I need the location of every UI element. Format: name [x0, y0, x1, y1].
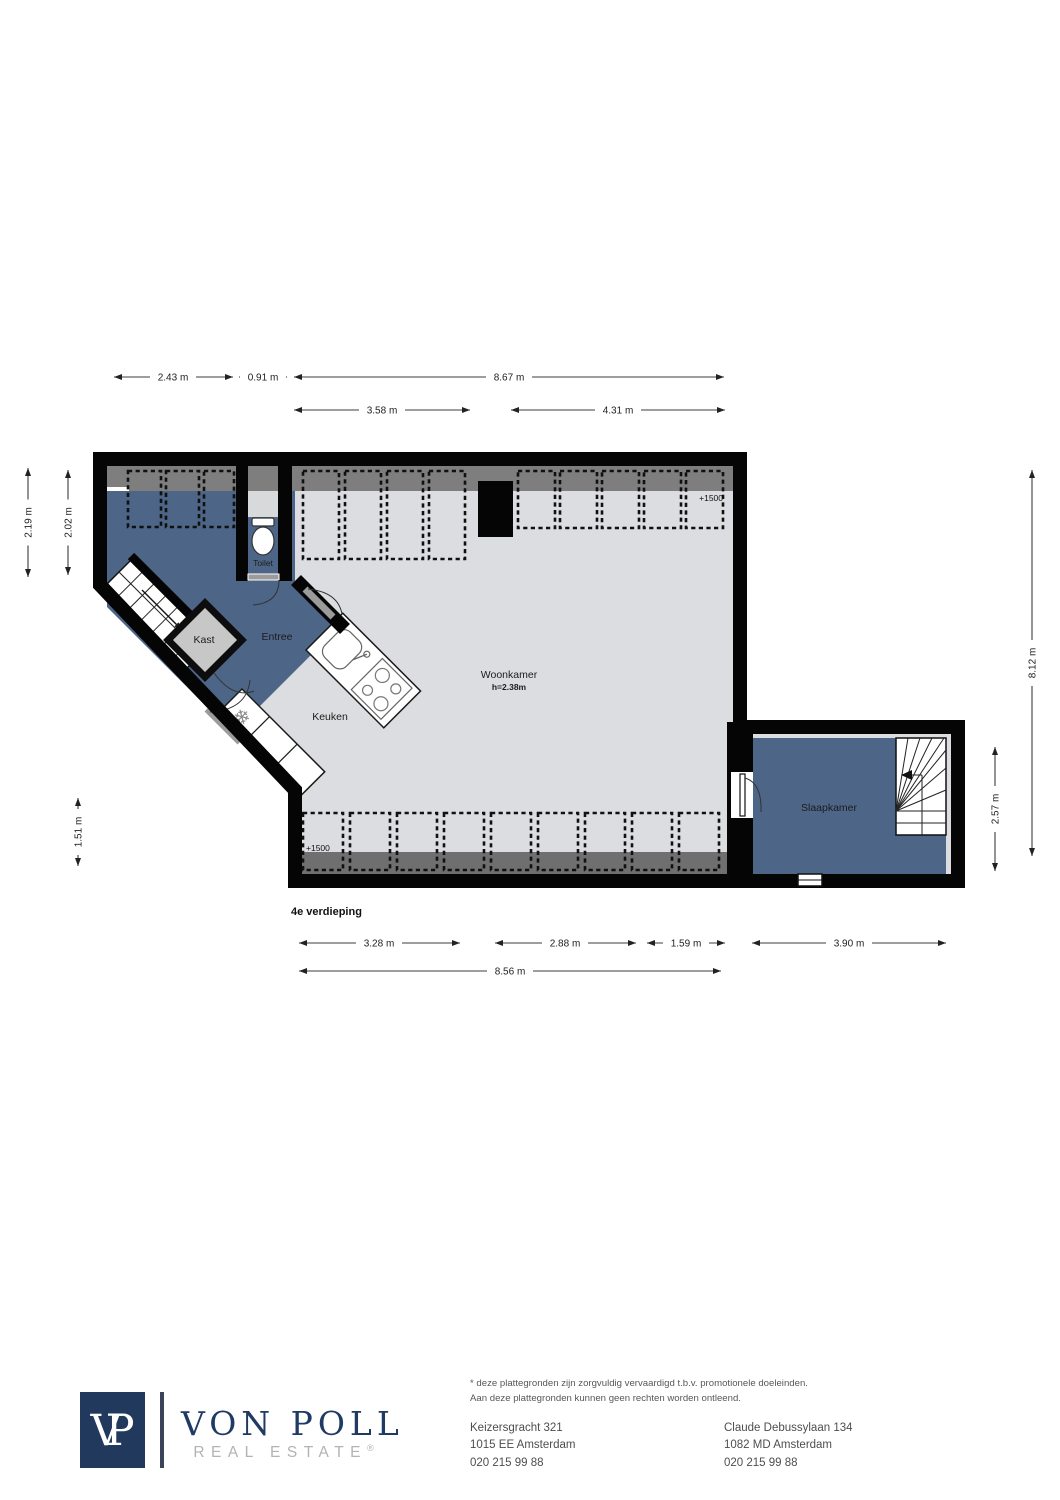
label-entree: Entree — [262, 631, 293, 643]
svg-text:2.88 m: 2.88 m — [550, 939, 581, 950]
dim-left-lower: 1.51 m — [72, 798, 85, 866]
dim-left-2: 2.02 m — [62, 470, 75, 575]
floorplan: ❄ — [100, 459, 958, 918]
label-keuken: Keuken — [312, 711, 348, 723]
label-woonkamer-height: h=2.38m — [492, 682, 527, 692]
wc-icon — [252, 518, 274, 555]
dim-top-3: 8.67 m — [294, 371, 724, 384]
floorplan-page: ❄ — [0, 0, 1060, 1500]
svg-text:1.51 m: 1.51 m — [74, 817, 85, 848]
svg-text:2.19 m: 2.19 m — [24, 507, 35, 538]
wall — [236, 459, 248, 581]
svg-text:2.02 m: 2.02 m — [64, 507, 75, 538]
office-left-city: 1015 EE Amsterdam — [470, 1437, 575, 1454]
disclaimer-line-2: Aan deze plattegronden kunnen geen recht… — [470, 1392, 808, 1407]
svg-text:2.43 m: 2.43 m — [158, 373, 189, 384]
floor-title: 4e verdieping — [291, 906, 362, 918]
office-right-street: Claude Debussylaan 134 — [724, 1420, 853, 1437]
level-marker-top: +1500 — [699, 493, 723, 503]
dim-bottom-3: 1.59 m — [647, 937, 725, 950]
svg-text:2.57 m: 2.57 m — [991, 794, 1002, 825]
logo-divider — [160, 1392, 164, 1468]
tagline-text: REAL ESTATE — [193, 1444, 367, 1461]
svg-text:4.31 m: 4.31 m — [603, 406, 634, 417]
wall — [278, 459, 292, 581]
label-slaapkamer: Slaapkamer — [801, 802, 858, 814]
dim-bottom-2: 2.88 m — [495, 937, 636, 950]
dim-bottom-5: 8.56 m — [299, 965, 721, 978]
vonpoll-logo: VP — [80, 1392, 145, 1468]
chimney — [478, 481, 513, 537]
dim-bottom-4: 3.90 m — [752, 937, 946, 950]
dim-right-2: 2.57 m — [989, 747, 1002, 871]
svg-text:1.59 m: 1.59 m — [671, 939, 702, 950]
office-address-left: Keizersgracht 321 1015 EE Amsterdam 020 … — [470, 1420, 575, 1472]
level-marker-bottom: +1500 — [306, 843, 330, 853]
logo-letter-p: P — [106, 1406, 135, 1456]
svg-text:8.56 m: 8.56 m — [495, 967, 526, 978]
office-right-phone: 020 215 99 88 — [724, 1455, 853, 1472]
label-toilet: Toilet — [253, 558, 273, 568]
svg-text:3.28 m: 3.28 m — [364, 939, 395, 950]
slaapkamer-window — [798, 874, 822, 886]
dim-left-1: 2.19 m — [22, 468, 35, 577]
disclaimer: * deze plattegronden zijn zorgvuldig ver… — [470, 1377, 808, 1407]
registered-mark: ® — [367, 1443, 374, 1453]
floorplan-canvas: ❄ — [0, 0, 1060, 1500]
dim-right-1: 8.12 m — [1026, 470, 1039, 856]
staircase-slaapkamer — [896, 738, 946, 835]
svg-text:8.67 m: 8.67 m — [494, 373, 525, 384]
toilet-slope — [248, 491, 278, 517]
brand-tagline: REAL ESTATE® — [181, 1443, 386, 1462]
brand-name: VON POLL — [181, 1404, 404, 1443]
office-left-phone: 020 215 99 88 — [470, 1455, 575, 1472]
svg-text:8.12 m: 8.12 m — [1028, 648, 1039, 679]
office-left-street: Keizersgracht 321 — [470, 1420, 575, 1437]
label-woonkamer: Woonkamer — [481, 669, 538, 681]
dim-top-4: 3.58 m — [294, 404, 470, 417]
disclaimer-line-1: * deze plattegronden zijn zorgvuldig ver… — [470, 1377, 808, 1392]
dim-top-2: 0.91 m — [239, 371, 287, 384]
dim-top-5: 4.31 m — [511, 404, 725, 417]
office-address-right: Claude Debussylaan 134 1082 MD Amsterdam… — [724, 1420, 853, 1472]
dim-bottom-1: 3.28 m — [299, 937, 460, 950]
label-kast: Kast — [193, 634, 214, 646]
svg-text:3.58 m: 3.58 m — [367, 406, 398, 417]
dim-top-1: 2.43 m — [114, 371, 233, 384]
toilet-door — [248, 574, 279, 580]
svg-text:3.90 m: 3.90 m — [834, 939, 865, 950]
office-right-city: 1082 MD Amsterdam — [724, 1437, 853, 1454]
svg-text:0.91 m: 0.91 m — [248, 373, 279, 384]
